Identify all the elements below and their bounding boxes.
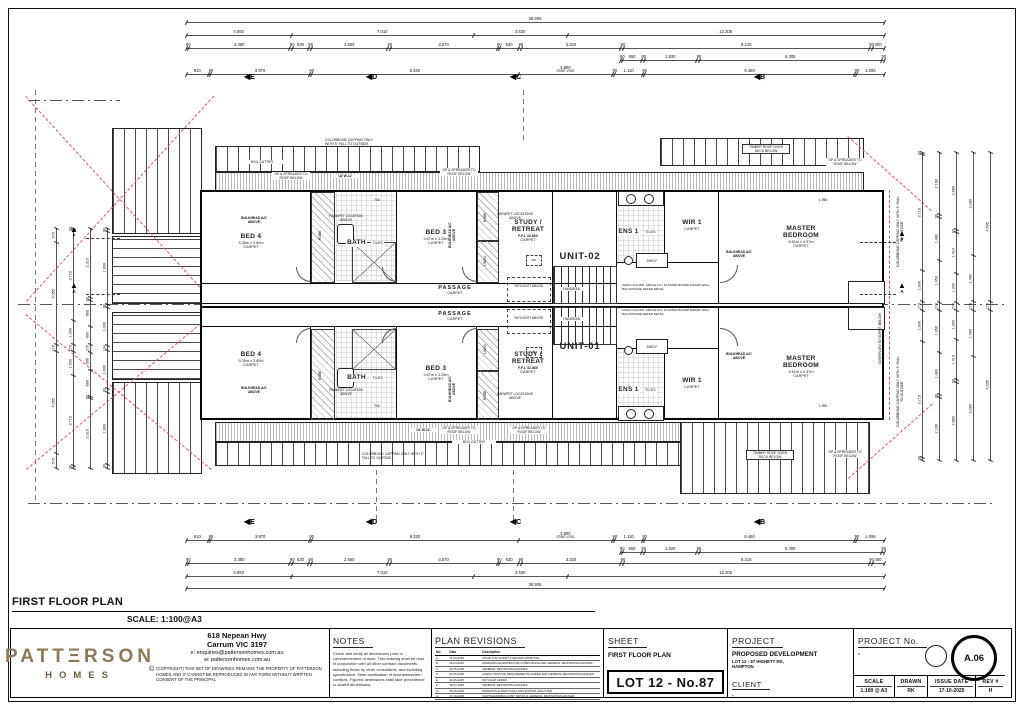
dimension-value: 400 (872, 558, 884, 563)
dimension-value: 8.320 (312, 69, 519, 74)
room-label-passage-upper: PASSAGE CARPET (410, 285, 500, 296)
dimension-value: 910 (186, 535, 209, 540)
dimension-value: 90 (881, 547, 884, 552)
unit-01-label: UNIT-01 (540, 342, 620, 353)
timber-roof-note: TIMBER ROOF OVER DECK BELOW (742, 144, 790, 154)
dimension-value: 2.550 (311, 558, 387, 563)
dimension-value: 910 (186, 69, 209, 74)
dimension-value: 3.970 (211, 535, 310, 540)
dim-chain-bottom-overall: 26.905 (186, 578, 884, 589)
room-name: WIR 1 (668, 220, 716, 227)
project-number-title: PROJECT No. (858, 636, 927, 648)
dimension-value: 4.060 (186, 571, 291, 576)
room-finish: CARPET (398, 377, 474, 382)
dimension-value: 4.595 (976, 310, 990, 460)
dimension-value: 26.905 (186, 17, 884, 22)
room-finish: CARPET (398, 241, 474, 246)
linen-label: LINEN (483, 336, 487, 362)
dimension-value: 1.000 (942, 273, 956, 302)
drawn-col: DRAWN RK (894, 676, 927, 697)
dimension-value: 860 (76, 300, 90, 326)
grid-marker-top-b: ◀B (754, 72, 765, 81)
dim-chain-right-1: 903.7101.0002701.0003.71090 (908, 152, 923, 460)
interior-dim: 1.950 (812, 404, 834, 408)
company-website: w: pattersonhomes.com.au (149, 657, 325, 664)
revision-cell: H (435, 694, 448, 700)
revisions-cell: PLAN REVISIONS No.DateDescriptionA21-03-… (431, 629, 603, 697)
dimension-value: 650 (623, 55, 642, 60)
room-label-bath-upper: BATH TILES (336, 231, 394, 249)
room-finish: CARPET (668, 385, 716, 390)
scale-drawn-strip: SCALE 1:100 @ A3 DRAWN RK ISSUE DATE 17-… (854, 675, 1005, 697)
dimension-value: 3.570 (390, 558, 497, 563)
grid-marker-bottom-e: ◀E (244, 517, 255, 526)
room-name: BEDROOM (756, 233, 846, 240)
dimension-value: 4.055 (42, 242, 56, 344)
shelf-lower: SHELF (636, 339, 668, 354)
room-finish: CARPET (410, 317, 500, 322)
parapet-band-top (215, 172, 864, 192)
roof-below-hatch-bottom (215, 442, 682, 466)
dimension-value: 1.450 (925, 260, 939, 302)
dimension-value: 1.410 (942, 339, 956, 380)
dimension-value: 3.630 (473, 30, 567, 35)
dimension-value: 3.570 (390, 43, 497, 48)
dimension-value: 1.000 (942, 310, 956, 339)
room-finish: CARPET (410, 291, 500, 296)
downpipe-note: DP & SPREADER TO ROOF BELOW (826, 158, 864, 166)
dimension-value: 26.905 (186, 583, 884, 588)
dimension-value: 1.110 (615, 69, 643, 74)
dim-chain-bottom-detail: 903.38090530902.550903.57090630903.32090… (186, 553, 884, 564)
scale-col: SCALE 1:100 @ A3 (854, 676, 894, 697)
revision-row: D30-05-2025AGENCY/ESTATE REQUIREMENTS AD… (435, 672, 600, 678)
company-address-line1: 618 Nepean Hwy (149, 631, 325, 640)
downpipe-note: DP & SPREADER TO ROOF BELOW (440, 426, 478, 434)
room-finish: CARPET (756, 244, 846, 249)
unit-02-label: UNIT-02 (540, 252, 620, 263)
dimension-value: 1.000 (93, 307, 107, 345)
plan-scale: SCALE: 1:100@A3 (127, 614, 202, 624)
brand-wordmark-sub: HOMES (45, 670, 115, 681)
dim-chain-top-detail: 903.38090530902.550903.57090630903.32090… (186, 38, 884, 49)
interior-dim: 740 (368, 404, 386, 408)
dimension-value: 4.595 (976, 152, 990, 302)
robe-strip-bed4-lower (311, 329, 335, 420)
stair-upper (553, 266, 617, 304)
dimension-value: 3.280 (959, 357, 973, 460)
robe-strip-bed4-upper (311, 192, 335, 283)
service-shaft-upper (848, 281, 885, 304)
wall (664, 190, 665, 262)
dimension-value: 90 (881, 55, 884, 60)
room-finish: TILES (644, 388, 657, 393)
section-line-stub (860, 294, 896, 295)
dim-chain-right-5: 4.5952704.595 (976, 152, 991, 460)
robe-label: ROBE (483, 204, 487, 230)
revision-cell: WINDOWS ADJUSTED FOR COMPLIANCE AND GENE… (481, 661, 600, 667)
dim-chain-bottom-wall: 910903.970908.3203.800STAIR VOID901.1109… (186, 528, 884, 541)
room-name: ENS 1 (617, 229, 639, 236)
section-marker-right-a: ▲A (898, 282, 906, 295)
parapet-note: PARAPET LOCATIONS ABOVE (495, 392, 535, 400)
client-title: CLIENT (732, 680, 770, 690)
room-label-master-upper: MASTER BEDROOM 5.61m x 4.37m CARPET (756, 226, 846, 249)
window-label-u2: U2 W-12 (332, 174, 358, 178)
dimension-value: 3.380 (189, 43, 290, 48)
dimension-value: 6.305 (699, 547, 881, 552)
bulkhead-note: BULKHEAD A/C ABOVE (238, 386, 270, 394)
revision-cell: 17-10-2025 (448, 694, 481, 700)
room-finish: CARPET (500, 370, 556, 375)
dimension-value: 1.110 (615, 535, 643, 540)
dimension-value: 3.800STAIR VOID (518, 66, 612, 74)
dimension-value: 8.215 (623, 558, 869, 563)
rev-value: H (976, 688, 1005, 694)
bulkhead-note: BULKHEAD A/C ABOVE (238, 216, 270, 224)
balustrade-note-upper: 1000mm(H) MIN. ABOVE F.F.L PLASTER BOARD… (622, 284, 714, 291)
room-finish: CARPET (500, 238, 556, 243)
dimension-value: 1.480 (959, 255, 973, 302)
stamp-circle-icon (925, 645, 947, 667)
linen-strip-lower (477, 329, 499, 372)
room-finish: CARPET (756, 374, 846, 379)
room-label-bath-lower: BATH TILES (336, 366, 394, 384)
scale-value: 1:100 @ A3 (854, 688, 894, 694)
copyright-note: © (COPYRIGHT) THIS SET OF DRAWINGS REMAI… (149, 666, 325, 683)
robe-label: ROBE (318, 222, 322, 248)
box-gutter-label: BOX GUTTER (452, 440, 496, 444)
dimension-value: 90 (59, 466, 73, 468)
grid-marker-bottom-d: ◀D (366, 517, 377, 526)
room-name: BED 3 (398, 230, 474, 237)
dimension-value: 2.680 (942, 382, 956, 460)
drawing-sheet: 26.905 4.0607.0103.63012.205 903.3809053… (0, 0, 1024, 708)
shelf-upper: SHELF (636, 253, 668, 268)
party-wall (200, 303, 884, 305)
room-label-ens-upper: ENS 1 TILES (614, 220, 660, 238)
stair-void-projection-top (523, 88, 524, 140)
dim-chain-bottom-inner-right: 90650901.820906.30590 (620, 542, 884, 553)
stair-lower (553, 307, 617, 345)
room-label-ens-lower: ENS 1 TILES (614, 378, 660, 396)
sheet-title: SHEET (608, 636, 647, 648)
room-finish: TILES (371, 241, 384, 246)
skylight-lower: SKYLIGHT ABOVE (507, 309, 551, 334)
dimension-value: 7.010 (291, 30, 473, 35)
client-value: - (732, 693, 849, 699)
room-name: BATH (346, 240, 367, 247)
dimension-value: 530 (293, 558, 309, 563)
revision-table: No.DateDescriptionA21-03-2025ISSUE FOR C… (435, 650, 600, 700)
dimension-value: 570 (42, 454, 56, 468)
downpipe-note: DP & SPREADER TO ROOF BELOW (440, 168, 478, 176)
section-marker-right-f: ▲F (898, 230, 906, 243)
revisions-table: No.DateDescriptionA21-03-2025ISSUE FOR C… (435, 650, 600, 700)
vanity-upper (618, 191, 664, 206)
dimension-value: 3.710 (908, 155, 922, 271)
dim-chain-top-spans: 4.0607.0103.63012.205 (186, 25, 884, 36)
company-cell: PATTΞRSON HOMES 618 Nepean Hwy Carrum VI… (11, 629, 329, 697)
dimension-value: 2.680 (942, 152, 956, 230)
timber-roof-note: TIMBER ROOF OVER DECK BELOW (746, 450, 794, 460)
dimension-sublabel: STAIR VOID (518, 70, 612, 73)
dimension-value: 1.900 (93, 231, 107, 303)
room-label-wir-upper: WIR 1 CARPET (668, 220, 716, 231)
dim-chain-right-2: 2.160901.4801.4502701.4501.480902.160 (925, 152, 940, 460)
manhole-upper: MH (526, 255, 542, 266)
notes-cell: NOTES Check and verify all dimensions pr… (329, 629, 431, 697)
dimension-value: 860 (76, 370, 90, 396)
plan-title-underline (12, 611, 595, 612)
section-marker-left-f: ▲F (70, 226, 78, 239)
project-cell: PROJECT PROPOSED DEVELOPMENT LOT 12 - 87… (727, 629, 853, 697)
dimension-value: 1.000 (908, 310, 922, 341)
room-label-study-upper: STUDY / RETREAT F.F.L 32.860 CARPET (500, 220, 556, 243)
notes-title: NOTES (333, 636, 373, 648)
revision-cell: CANTILEVER/BALCONY NOTES & GENERAL REVIS… (481, 694, 600, 700)
lot-number-box: LOT 12 - No.87 (607, 670, 724, 694)
sheet-name: FIRST FLOOR PLAN (608, 652, 723, 659)
linen-label: LINEN (483, 248, 487, 274)
shelf-label: SHELF (647, 345, 658, 349)
dimension-value: 1.820 (644, 547, 697, 552)
copyright-icon: © (149, 666, 154, 683)
skylight-label: SKYLIGHT ABOVE (510, 284, 548, 288)
room-label-bed3-lower: BED 3 3.57m x 3.28m CARPET (398, 366, 474, 382)
dimension-value: 2.160 (925, 397, 939, 460)
company-email: e: enquiries@pattersonhomes.com.au (149, 650, 325, 657)
dimension-sublabel: STAIR VOID (518, 536, 612, 539)
dim-chain-right-4: 3.2801.4802701.4803.280 (959, 152, 974, 460)
plan-title: FIRST FLOOR PLAN (12, 596, 123, 608)
room-name: BATH (346, 375, 367, 382)
revision-cell: AGENCY/ESTATE REQUIREMENTS ADDED AND GEN… (481, 672, 600, 678)
dimension-value: 1.000 (59, 351, 73, 375)
dimension-value: 90 (93, 465, 107, 468)
room-finish: CARPET (668, 227, 716, 232)
grid-marker-top-d: ◀D (366, 72, 377, 81)
scale-label: SCALE (856, 679, 892, 687)
project-name: PROPOSED DEVELOPMENT (732, 651, 849, 659)
room-label-bed4-lower: BED 4 3.35m x 3.80m CARPET (218, 352, 284, 368)
dimension-value: 3.630 (473, 571, 567, 576)
title-block: PATTΞRSON HOMES 618 Nepean Hwy Carrum VI… (10, 628, 1012, 698)
wall (718, 190, 719, 303)
room-label-passage-lower: PASSAGE CARPET (410, 311, 500, 322)
boundary-line-left (35, 88, 36, 500)
colorbond-note: COLORBOND CAPPING ONLY WITH 3° FALL TO O… (325, 138, 381, 146)
basin-icon (644, 194, 654, 204)
parapet-note: PARAPET LOCATION ABOVE (328, 214, 364, 222)
dimension-value: 4.055 (42, 351, 56, 453)
notes-body: Check and verify all dimensions prior to… (333, 651, 428, 687)
dimension-value: 3.710 (59, 376, 73, 466)
dimension-value: 3.320 (521, 558, 620, 563)
dimension-value: 3.800STAIR VOID (518, 532, 612, 540)
skylight-label: SKYLIGHT ABOVE (510, 316, 548, 320)
colorbond-note: COLORBOND CAPPING ONLY WITH 3° FALL TO O… (362, 452, 424, 460)
bulkhead-note: BULKHEAD A/C ABOVE (448, 372, 456, 406)
room-name: BED 4 (218, 234, 284, 241)
robe-label: ROBE (483, 382, 487, 408)
manhole-label: MH (532, 350, 537, 354)
dim-chain-left-4: 901.900901.0001341.000901.90090 (93, 228, 108, 468)
interior-dim: 740 (368, 198, 386, 202)
dimension-value: 8.320 (312, 535, 519, 540)
rev-col: REV # H (975, 676, 1005, 697)
dimension-value: 1.900 (93, 392, 107, 464)
project-number-cell: PROJECT No. - A.06 SCALE 1:100 @ A3 DRAW… (853, 629, 1005, 697)
basin-icon (626, 409, 636, 419)
deck-roof-hatch-mid-upper-left (112, 236, 202, 304)
dimension-value: 1.480 (925, 217, 939, 260)
room-name: WIR 1 (668, 378, 716, 385)
rev-label: REV # (978, 679, 1003, 687)
room-name: BED 3 (398, 366, 474, 373)
parapet-note: PARAPET LOCATION ABOVE (328, 388, 364, 396)
dimension-value: 8.460 (645, 535, 855, 540)
dim-chain-left-1: 5704.0552704.055570 (42, 228, 57, 468)
dimension-value: 1.095 (857, 535, 884, 540)
dimension-value: 650 (623, 547, 642, 552)
drawn-value: RK (895, 688, 927, 694)
dimension-value: 2.310 (76, 399, 90, 468)
parapet-note: PARAPET LOCATIONS ABOVE (495, 212, 535, 220)
dimension-value: 1.000 (908, 271, 922, 302)
dimension-value: 1.000 (59, 320, 73, 344)
overflow-note: OVERFLOW TO SOFFIT BELOW (878, 312, 882, 364)
dim-chain-bottom-spans: 4.0607.0103.63012.205 (186, 566, 884, 577)
lot-number: LOT 12 - No.87 (616, 675, 714, 690)
room-finish: TILES (644, 230, 657, 235)
dimension-value: 1.000 (93, 351, 107, 389)
dimension-value: 7.010 (291, 571, 473, 576)
dimension-value: 3.710 (59, 230, 73, 320)
room-finish: TILES (371, 376, 384, 381)
dimension-value: 1.410 (942, 232, 956, 273)
sheet-cell: SHEET FIRST FLOOR PLAN LOT 12 - No.87 (603, 629, 727, 697)
manhole-lower: MH (526, 347, 542, 358)
dim-chain-left-3: 2.31090860600270600860902.310 (76, 228, 91, 468)
room-name: RETREAT (500, 227, 556, 234)
dimension-value: 4.060 (186, 30, 291, 35)
revisions-title: PLAN REVISIONS (435, 636, 525, 648)
dimension-value: 12.205 (567, 30, 884, 35)
wall (718, 307, 719, 420)
dim-chain-left-2: 903.7101.0002701.0003.71090 (59, 228, 74, 468)
bulkhead-note: BULKHEAD A/C ABOVE (722, 352, 756, 360)
dimension-value: 3.280 (959, 152, 973, 255)
section-line-stub (860, 242, 896, 243)
grid-marker-bottom-c: ◀C (510, 517, 521, 526)
room-name: RETREAT (500, 359, 556, 366)
linen-strip-upper (477, 240, 499, 283)
handrail-label: HANDRAIL (556, 287, 588, 291)
room-label-bed4-upper: BED 4 3.35m x 3.80m CARPET (218, 234, 284, 250)
dimension-value: 3.970 (211, 69, 310, 74)
dimension-value: 12.205 (567, 571, 884, 576)
dimension-value: 530 (293, 43, 309, 48)
revision-row: H17-10-2025CANTILEVER/BALCONY NOTES & GE… (435, 694, 600, 700)
window-label-u1: U1 W-12 (410, 428, 436, 432)
bulkhead-note: BULKHEAD A/C ABOVE (448, 218, 456, 252)
project-address-line2: HAMPTON (732, 664, 849, 670)
wall (664, 348, 665, 420)
issue-date-label: ISSUE DATE (930, 679, 973, 687)
room-name: ENS 1 (617, 387, 639, 394)
grid-marker-top-e: ◀E (244, 72, 255, 81)
dimension-value: 3.710 (908, 341, 922, 457)
basin-icon (644, 409, 654, 419)
dimension-value: 1.095 (857, 69, 884, 74)
downpipe-note: DP & SPREADER TO ROOF BELOW (826, 450, 864, 458)
dimension-value: 600 (76, 352, 90, 370)
dimension-value: 90 (908, 457, 922, 460)
room-label-master-lower: MASTER BEDROOM 5.61m x 4.37m CARPET (756, 356, 846, 379)
smoke-detector-icon (624, 346, 633, 355)
shelf-label: SHELF (647, 259, 658, 263)
deck-roof-hatch-mid-lower-left (112, 312, 202, 380)
manhole-label: MH (532, 258, 537, 262)
room-name: BED 4 (218, 352, 284, 359)
dimension-value: 1.450 (925, 310, 939, 352)
grid-marker-top-c: ◀C (510, 72, 521, 81)
room-finish: CARPET (218, 245, 284, 250)
dimension-value: 3.380 (189, 558, 290, 563)
brand-wordmark: PATTΞRSON (5, 646, 155, 668)
dim-chain-top-inner-right: 90650901.820906.30590 (620, 50, 884, 61)
section-marker-left-a: ▲A (70, 282, 78, 295)
issue-date-value: 17-10-2025 (928, 688, 975, 694)
room-label-wir-lower: WIR 1 CARPET (668, 378, 716, 389)
company-address-line2: Carrum VIC 3197 (149, 640, 325, 649)
deck-roof-hatch-bottom-left (112, 382, 202, 474)
colorbond-capping-line (889, 190, 890, 420)
bulkhead-note: BULKHEAD A/C ABOVE (722, 250, 756, 258)
dim-chain-right-3: 2.680901.4101.0002701.0001.410902.680 (942, 152, 957, 460)
dim-chain-top-overall: 26.905 (186, 12, 884, 23)
dimension-value: 1.820 (644, 55, 697, 60)
box-gutter-label: BOX GUTTER (240, 160, 284, 164)
dimension-value: 2.310 (76, 228, 90, 297)
dimension-value: 2.160 (925, 152, 939, 215)
sheet-code: A.06 (964, 653, 984, 664)
dimension-value: 600 (76, 326, 90, 344)
interior-dim: 1.950 (812, 198, 834, 202)
dimension-value: 8.460 (645, 69, 855, 74)
downpipe-note: DP & SPREADER TO ROOF BELOW (272, 172, 310, 180)
grid-marker-bottom-b: ◀B (754, 517, 765, 526)
handrail-label: HANDRAIL (556, 317, 588, 321)
downpipe-note: DP & SPREADER TO ROOF BELOW (510, 426, 548, 434)
dimension-value: 1.480 (925, 352, 939, 395)
skylight-upper: SKYLIGHT ABOVE (507, 277, 551, 302)
room-finish: CARPET (218, 363, 284, 368)
project-title: PROJECT (732, 636, 783, 648)
revision-row: B04-04-2025WINDOWS ADJUSTED FOR COMPLIAN… (435, 661, 600, 667)
centerline-bottom (28, 503, 992, 504)
smoke-detector-icon (624, 256, 633, 265)
drawn-label: DRAWN (897, 679, 925, 687)
dimension-value: 8.215 (623, 43, 869, 48)
dimension-value: 400 (872, 43, 884, 48)
deck-roof-hatch-top-left (112, 128, 202, 234)
dimension-value: 2.550 (311, 43, 387, 48)
balustrade-note-lower: 1000mm(H) MIN. ABOVE F.F.L PLASTER BOARD… (622, 309, 714, 316)
dimension-value: 6.305 (699, 55, 881, 60)
company-logo: PATTΞRSON HOMES (11, 629, 149, 697)
